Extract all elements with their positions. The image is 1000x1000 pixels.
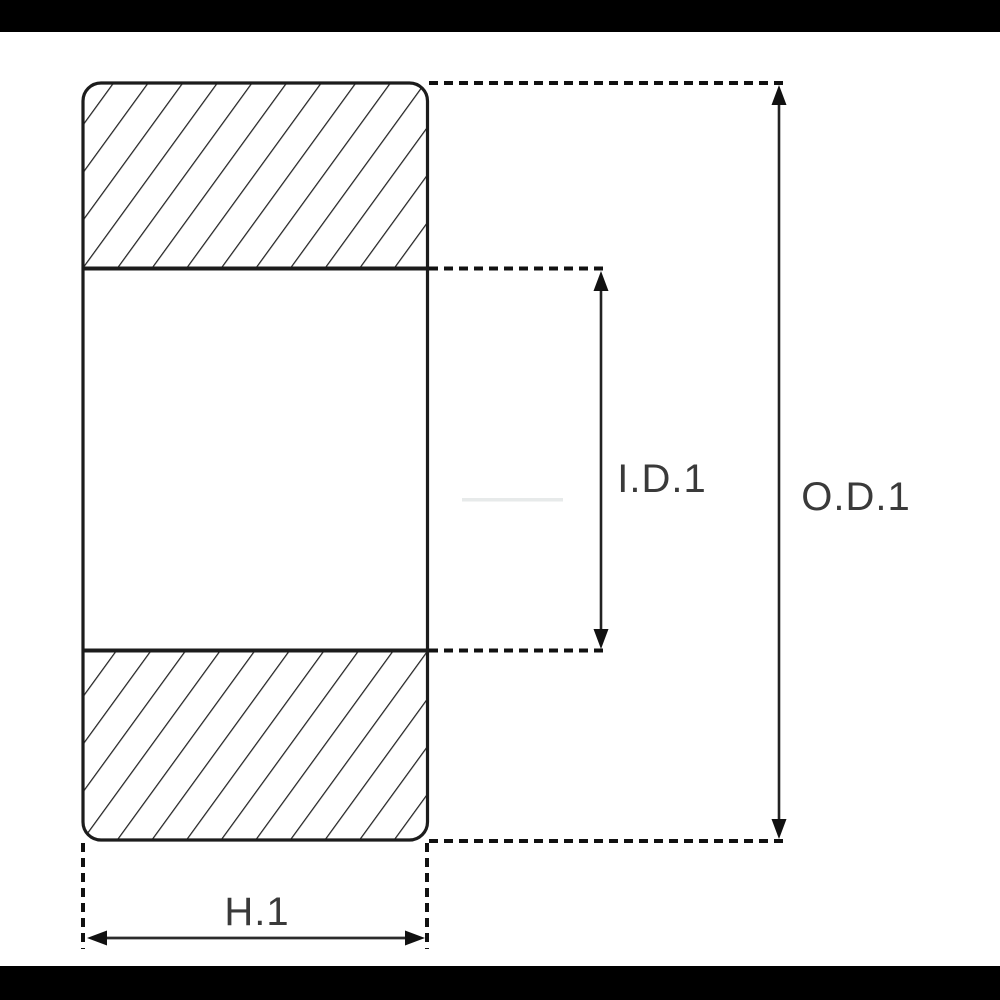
figure-canvas: I.D.1 O.D.1 H.1: [0, 0, 1000, 1000]
inner-diameter-label: I.D.1: [617, 457, 706, 501]
inner-diameter-dimension: [594, 271, 609, 649]
arrowhead-up-icon: [772, 85, 787, 105]
watermark-artifact: [462, 498, 563, 502]
width-label: H.1: [224, 890, 289, 934]
bearing-cross-section-diagram: I.D.1 O.D.1 H.1: [0, 0, 1000, 1000]
outer-ring-top-hatch: [83, 83, 428, 269]
letterbox-top-bar: [0, 0, 1000, 32]
arrowhead-left-icon: [87, 931, 107, 946]
arrowhead-up-icon: [594, 271, 609, 291]
outer-diameter-label: O.D.1: [801, 475, 910, 519]
outer-diameter-dimension: [772, 85, 787, 839]
letterbox-bottom-bar: [0, 966, 1000, 1000]
outer-ring-bottom-hatch: [83, 650, 428, 841]
arrowhead-down-icon: [594, 629, 609, 649]
arrowhead-down-icon: [772, 819, 787, 839]
arrowhead-right-icon: [405, 931, 425, 946]
bearing-ring-sections: [83, 83, 428, 841]
